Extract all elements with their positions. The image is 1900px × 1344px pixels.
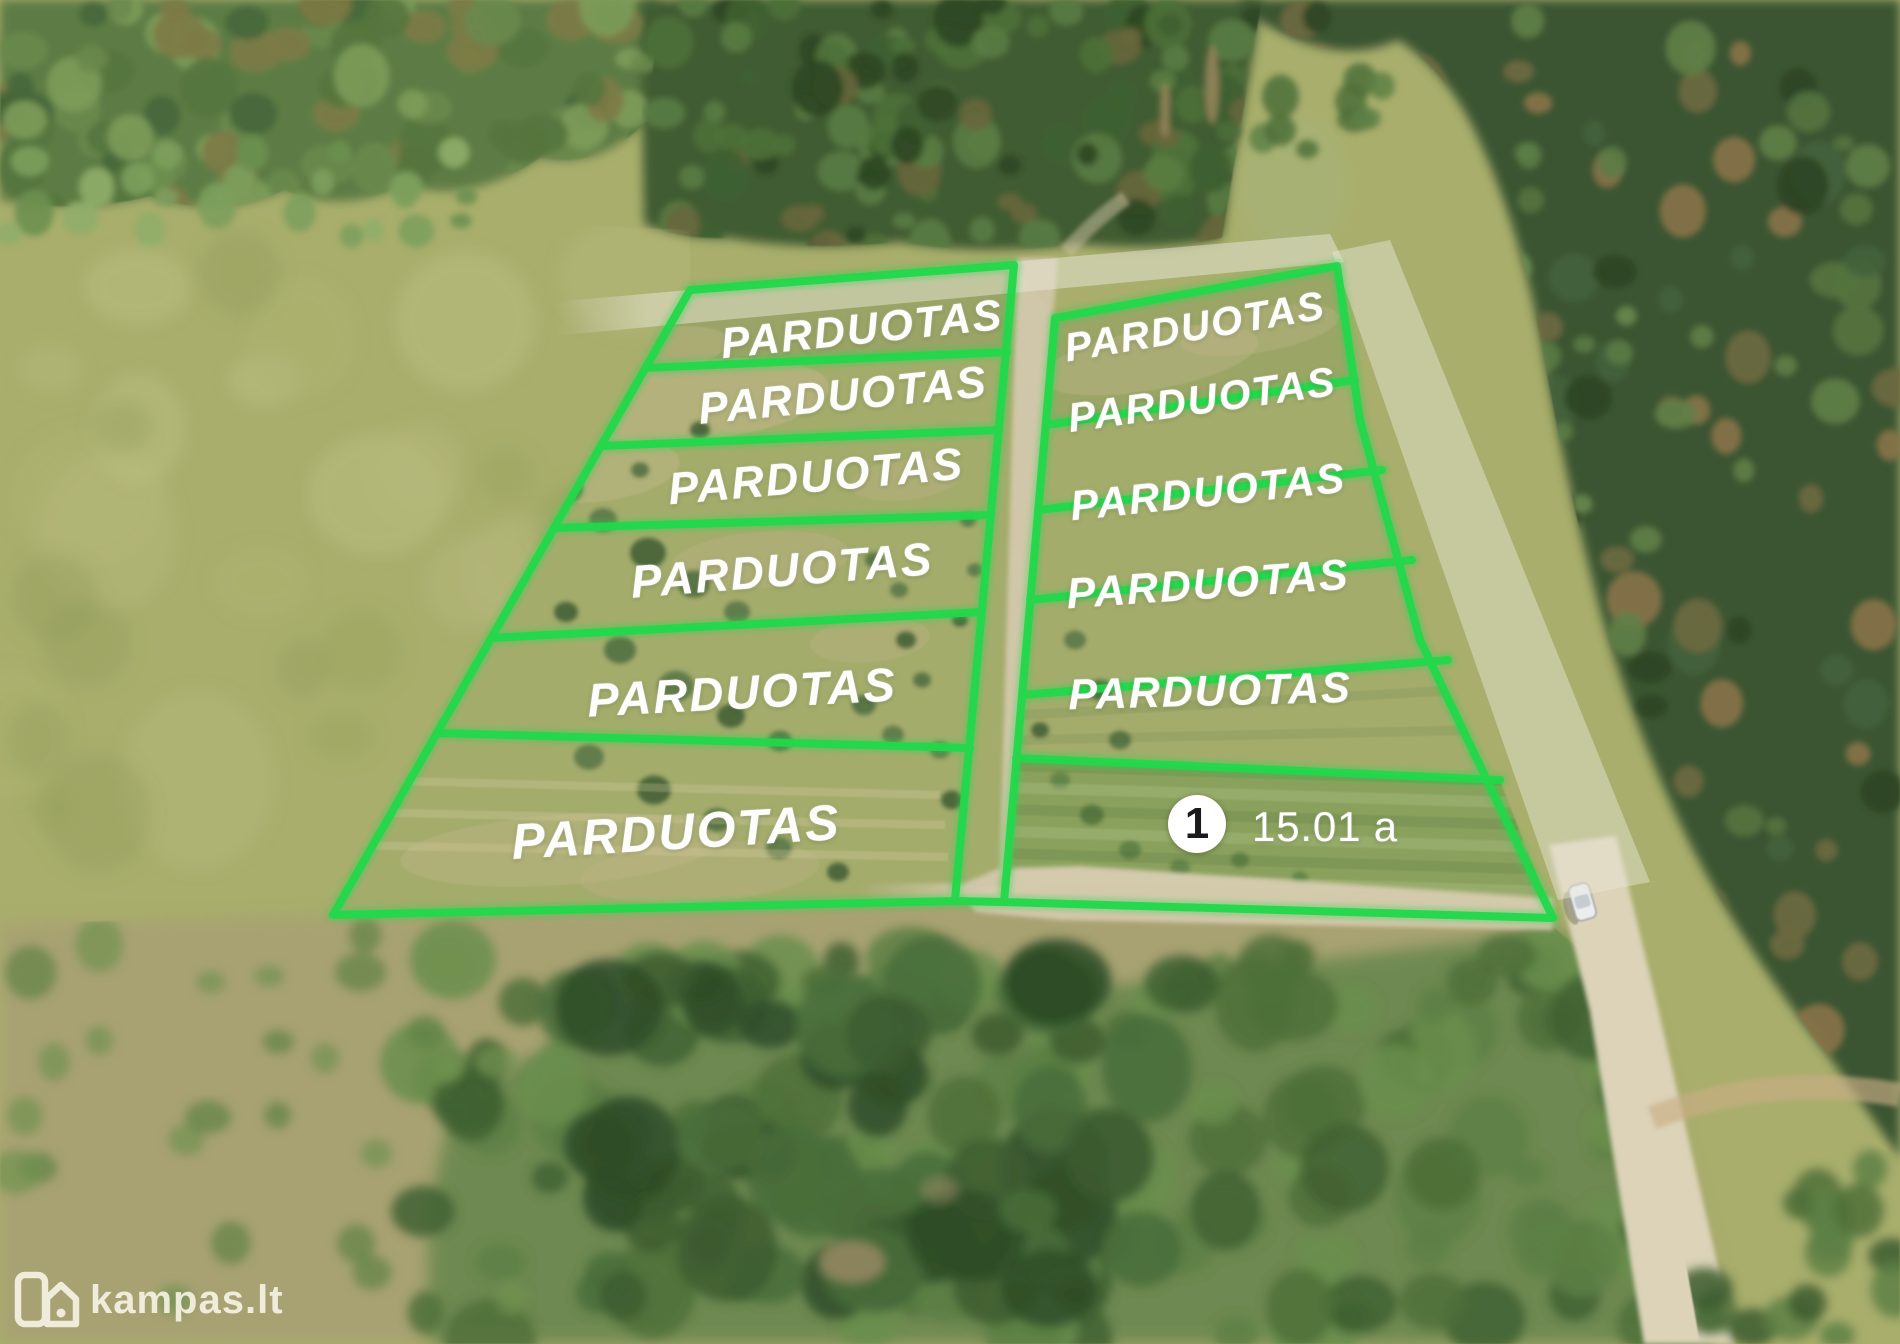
dirt-patch xyxy=(818,1240,886,1284)
aerial-plot-map: PARDUOTAS PARDUOTAS PARDUOTAS PARDUOTAS … xyxy=(0,0,1900,1344)
aerial-photo xyxy=(0,0,1900,1344)
available-plot-number-badge: 1 xyxy=(1168,795,1226,853)
available-plot-number: 1 xyxy=(1185,799,1209,849)
available-plot-area-label: 15.01 a xyxy=(1252,803,1398,851)
house-icon xyxy=(14,1271,80,1329)
sold-plot-label-right-5: PARDUOTAS xyxy=(1068,667,1352,717)
brand-watermark: kampas.lt xyxy=(14,1270,284,1330)
brand-name: kampas.lt xyxy=(90,1280,284,1320)
dirt-patch-small xyxy=(920,1176,960,1204)
